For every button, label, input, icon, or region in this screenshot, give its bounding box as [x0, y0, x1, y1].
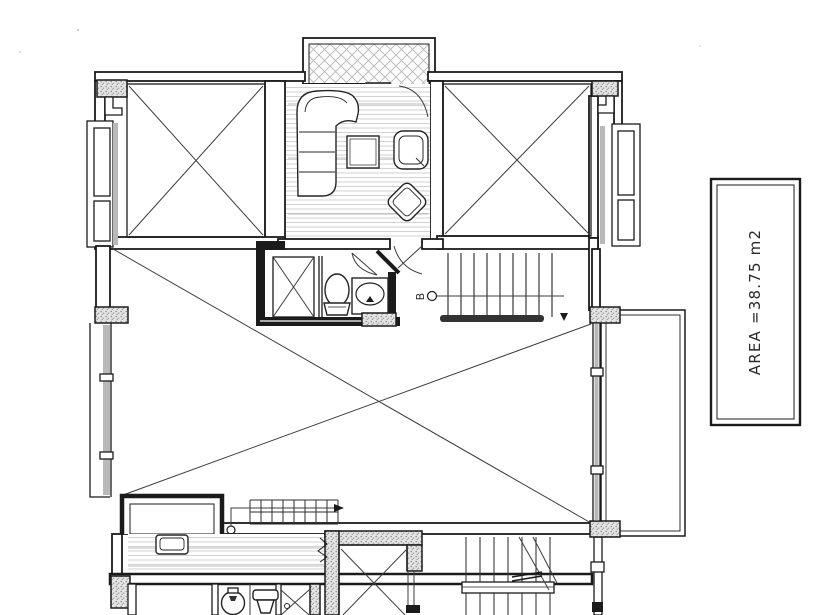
stair-rail-band — [440, 315, 544, 322]
column-terrace-bottom — [590, 521, 620, 537]
corridor-bottom — [112, 534, 324, 577]
column-mid-left — [95, 307, 128, 323]
area-label-text: AREA =38.75 m2 — [746, 229, 764, 375]
balcony-tile-hatch — [309, 44, 429, 88]
bathroom-duct-block — [362, 313, 396, 326]
sink — [352, 278, 388, 314]
window-bay-left — [87, 121, 118, 247]
section-marker-letter: B — [414, 292, 427, 301]
floorplan-drawing: B — [0, 0, 821, 615]
floorplan-scan-page: B — [0, 0, 821, 615]
corridor-fixture — [156, 535, 188, 554]
area-label-box: AREA =38.75 m2 — [711, 179, 800, 425]
niche-bottom-left — [122, 496, 222, 534]
column-top-left — [97, 80, 127, 97]
coffee-table — [347, 136, 379, 168]
stair-handrail-band — [462, 582, 554, 593]
lower-duct-wall — [310, 584, 320, 615]
toilet — [324, 274, 350, 315]
column-top-right — [592, 81, 618, 96]
column-bottom-left — [111, 576, 130, 608]
column-terrace-top — [590, 307, 620, 323]
lower-partition-1 — [212, 584, 218, 615]
armchair — [394, 131, 428, 169]
